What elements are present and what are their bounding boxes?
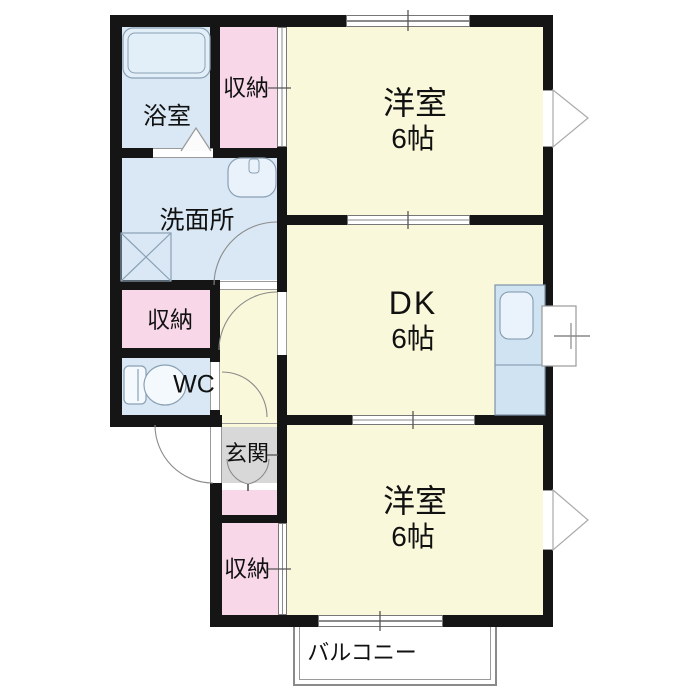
wall-bath-closet	[210, 27, 220, 158]
wall-closet-top-south	[210, 148, 287, 158]
bay-window-bottom-icon	[553, 490, 588, 550]
label-western-bottom: 洋室	[383, 485, 447, 517]
wall-closet-mid-south	[110, 348, 220, 358]
wall-genkan-west	[210, 483, 222, 627]
label-western-bottom-size: 6帖	[391, 523, 435, 551]
window-gap-western-bottom	[543, 490, 553, 550]
entrance-door-arc	[155, 425, 213, 483]
label-dk-size: 6帖	[391, 325, 435, 353]
entrance-step	[220, 417, 277, 427]
wall-top	[110, 15, 553, 27]
room-western-bottom	[287, 425, 543, 615]
floor-plan: 浴室 収納 洋室 6帖 洗面所 収納 WC DK 6帖 玄関 収納 洋室 6帖 …	[0, 0, 700, 700]
wall-notch-south	[110, 415, 222, 427]
label-western-top-size: 6帖	[391, 125, 435, 153]
label-closet-middle: 収納	[147, 309, 193, 332]
entrance-step-line	[220, 423, 277, 424]
label-balcony: バルコニー	[307, 642, 417, 664]
wall-washroom-south	[110, 280, 220, 290]
bay-window-top-icon	[553, 90, 588, 147]
window-gap-western-top	[543, 90, 553, 147]
label-entrance: 玄関	[225, 443, 269, 465]
label-wc: WC	[173, 373, 215, 398]
threshold-washroom	[220, 281, 277, 290]
shoe-cabinet-gap	[220, 483, 277, 490]
label-western-top: 洋室	[383, 87, 447, 119]
hallway	[220, 290, 277, 417]
label-closet-bottom: 収納	[224, 558, 270, 581]
label-bathroom: 浴室	[143, 105, 191, 129]
window-top	[346, 15, 470, 27]
wall-hall-west-lower	[210, 410, 220, 427]
wall-dk-west-lower	[277, 355, 287, 523]
wall-hall-west-upper	[210, 290, 220, 362]
wall-bath-south	[110, 148, 153, 158]
shoe-cabinet	[220, 490, 277, 515]
sliding-door-dk-western-bottom	[352, 415, 475, 425]
sliding-door-closet-top	[277, 27, 287, 147]
wall-closet-bottom-north	[210, 515, 278, 523]
sliding-door-closet-bottom	[278, 523, 287, 615]
threshold-bathroom	[153, 148, 213, 158]
label-dk: DK	[389, 287, 437, 319]
sliding-door-western-top-dk	[347, 215, 470, 225]
wall-left	[110, 15, 122, 427]
door-opening-entrance	[210, 427, 222, 483]
door-opening-hall-dk	[277, 292, 287, 355]
label-washroom: 洗面所	[159, 209, 234, 234]
window-bottom-balcony	[318, 615, 443, 627]
room-western-top	[287, 27, 543, 215]
label-closet-top: 収納	[223, 77, 269, 100]
